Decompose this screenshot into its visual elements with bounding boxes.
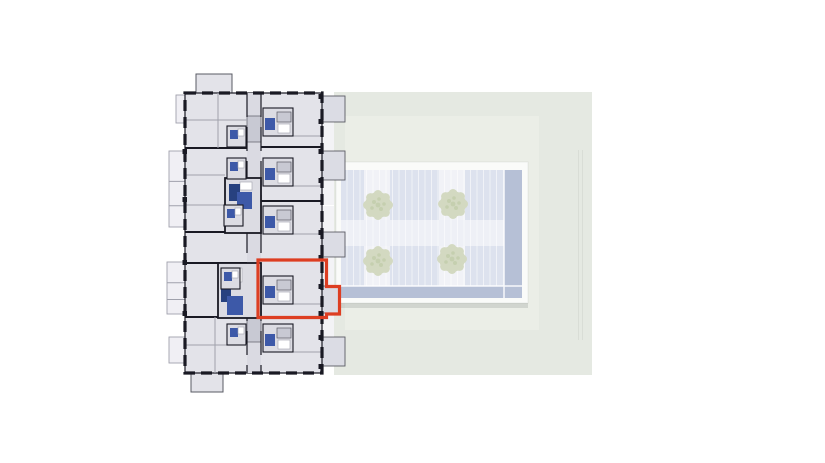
washbasin bbox=[278, 340, 290, 349]
shower bbox=[227, 209, 235, 218]
terrace-east bbox=[322, 123, 334, 150]
shower bbox=[265, 334, 275, 346]
washbasin bbox=[238, 129, 244, 136]
roof-bump-top bbox=[196, 74, 232, 93]
wall-tick bbox=[319, 364, 324, 369]
pool-band-right bbox=[504, 170, 522, 298]
shower bbox=[265, 118, 275, 130]
shower bbox=[230, 162, 238, 171]
washbasin bbox=[235, 208, 241, 215]
plaza-shadow bbox=[336, 303, 528, 308]
wall-tick bbox=[319, 335, 324, 340]
terrace-east bbox=[322, 181, 334, 205]
site-plan-canvas bbox=[0, 0, 825, 463]
balcony-east bbox=[322, 96, 345, 122]
roof-bump-bottom bbox=[191, 373, 223, 392]
wall-tick bbox=[319, 230, 324, 235]
washbasin bbox=[278, 222, 290, 231]
courtyard bbox=[334, 92, 592, 375]
closet bbox=[277, 280, 291, 290]
balcony-east bbox=[322, 151, 345, 180]
washbasin bbox=[238, 327, 244, 334]
balcony-west bbox=[167, 262, 186, 314]
balcony-east bbox=[322, 337, 345, 366]
closet bbox=[277, 162, 291, 172]
shower bbox=[230, 328, 238, 337]
wall-tick bbox=[319, 284, 324, 289]
balcony-east bbox=[322, 232, 345, 257]
tree bbox=[437, 244, 467, 274]
wall-tick bbox=[319, 94, 324, 99]
stair-landing bbox=[227, 296, 243, 315]
shower bbox=[265, 168, 275, 180]
building-floor-plan bbox=[167, 74, 345, 392]
closet bbox=[277, 210, 291, 220]
wall-tick bbox=[183, 197, 188, 202]
wall-tick bbox=[319, 311, 324, 316]
wall-tick bbox=[319, 119, 324, 124]
left-balconies bbox=[167, 95, 186, 363]
shower bbox=[224, 272, 232, 281]
tree bbox=[363, 246, 393, 276]
shower bbox=[230, 130, 238, 139]
elevator-block bbox=[247, 116, 261, 142]
wall-tick bbox=[183, 311, 188, 316]
washbasin bbox=[278, 124, 290, 133]
washbasin bbox=[278, 174, 290, 183]
closet bbox=[277, 112, 291, 122]
shower bbox=[265, 286, 275, 298]
wall-tick bbox=[183, 149, 188, 154]
washbasin bbox=[232, 271, 238, 278]
core-fixture bbox=[240, 182, 252, 190]
site-plan bbox=[0, 0, 825, 463]
wall-tick bbox=[183, 260, 188, 265]
shower bbox=[265, 216, 275, 228]
terrace-east bbox=[322, 206, 334, 231]
wall-tick bbox=[319, 178, 324, 183]
wall-tick bbox=[319, 149, 324, 154]
washbasin bbox=[278, 292, 290, 301]
balcony-east bbox=[322, 286, 340, 313]
washbasin bbox=[238, 161, 244, 168]
closet bbox=[277, 328, 291, 338]
pool-band-bottom bbox=[341, 286, 522, 298]
elevator-block bbox=[247, 318, 261, 342]
tree bbox=[363, 190, 393, 220]
tree bbox=[438, 189, 468, 219]
